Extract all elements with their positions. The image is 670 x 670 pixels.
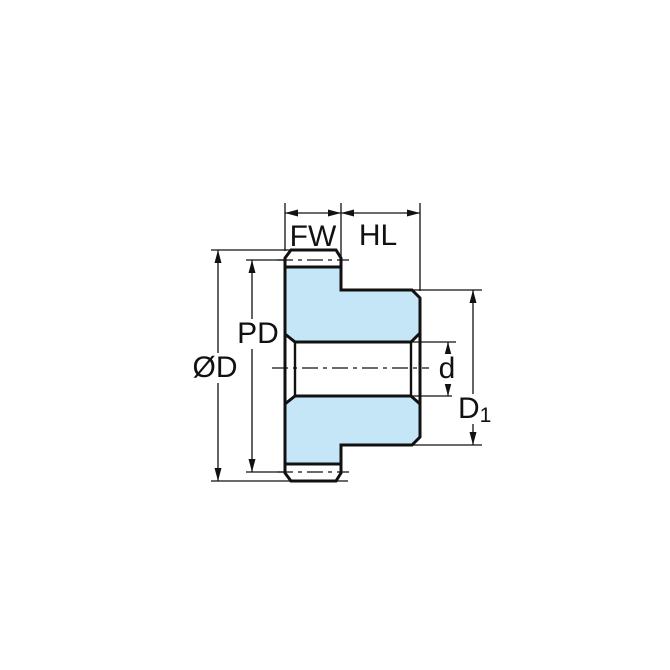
arrow-hl-left (341, 210, 354, 217)
gear-body (285, 250, 420, 481)
gear-body-upper (285, 267, 420, 342)
label-outside-diameter: ØD (193, 351, 238, 384)
label-bore-diameter: d (439, 352, 456, 385)
label-hub-diameter-main: D (458, 392, 480, 425)
label-hub-diameter-subscript: 1 (480, 404, 492, 427)
gear-body-lower (285, 396, 420, 464)
label-hub-length: HL (359, 219, 397, 252)
arrow-od-bottom (215, 468, 222, 481)
gear-drawing: FW HL PD ØD d D1 (0, 0, 670, 670)
arrow-fw-left (285, 210, 298, 217)
label-pitch-diameter: PD (237, 317, 279, 350)
arrow-pd-bottom (249, 459, 256, 472)
label-face-width: FW (290, 220, 337, 253)
arrow-d1-top (470, 290, 477, 303)
arrow-fw-right (328, 210, 341, 217)
arrow-od-top (215, 250, 222, 263)
drawing-canvas: FW HL PD ØD d D1 (0, 0, 670, 670)
arrow-d1-bottom (470, 432, 477, 445)
arrow-hl-right (407, 210, 420, 217)
arrow-pd-top (249, 260, 256, 273)
